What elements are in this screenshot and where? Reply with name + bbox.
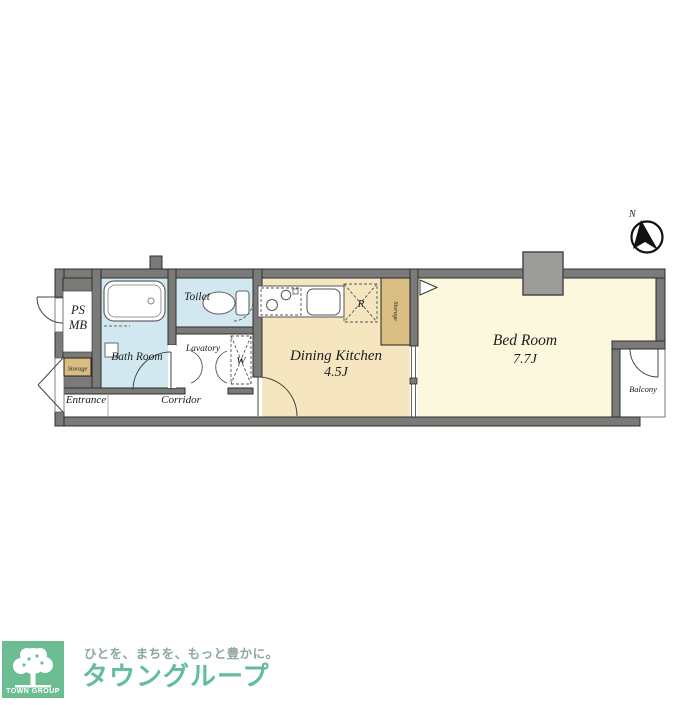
wall-toilet-lavatory (176, 327, 253, 334)
wall-bath-toilet (168, 269, 176, 345)
label-lavatory: Lavatory (185, 344, 221, 354)
wall-bedroom-right (612, 349, 620, 426)
label-dk-name: Dining Kitchen (289, 348, 382, 364)
label-entrance: Entrance (65, 394, 106, 406)
wall-psmb-right (92, 269, 101, 393)
label-toilet: Toilet (184, 291, 211, 303)
label-ps: PS (70, 303, 86, 317)
wall-kitchen-left (253, 269, 262, 377)
label-refrigerator: R (357, 298, 365, 310)
wall-balcony-top (612, 341, 665, 349)
north-arrow-icon: N (628, 209, 663, 253)
wall-stub-top (150, 256, 162, 269)
label-bath: Bath Room (111, 351, 162, 363)
pillar (523, 252, 563, 295)
sink-icon (307, 289, 340, 315)
wall-bottom (55, 417, 640, 426)
label-corridor: Corridor (161, 394, 201, 406)
label-storage-small: Storage (68, 366, 88, 373)
town-group-label: TOWN GROUP (2, 688, 64, 695)
wall-top (55, 269, 665, 278)
label-storage-tall: Storage (392, 301, 399, 321)
sliding-door-dk-bedroom (410, 346, 417, 417)
wall-dk-bedroom (410, 269, 418, 346)
wall-psmb-top (63, 278, 92, 291)
label-bedroom-name: Bed Room (493, 332, 557, 349)
label-mb: MB (68, 318, 87, 332)
floorplan-page: N PS MB Storage Bath Room Toilet Lavator… (0, 0, 700, 700)
compass-n-label: N (628, 209, 637, 220)
footer-brand-name: タウングループ (82, 656, 269, 693)
town-group-logo: TOWN GROUP (2, 641, 64, 698)
opening-bath-door (168, 345, 176, 388)
label-bedroom-size: 7.7J (513, 352, 538, 367)
floorplan-drawing: N PS MB Storage Bath Room Toilet Lavator… (0, 0, 700, 700)
wall-corridor-2 (228, 388, 253, 394)
kitchen-counter (258, 286, 344, 317)
label-balcony: Balcony (629, 384, 657, 394)
wall-left-3 (55, 412, 64, 426)
label-washer: W (236, 355, 246, 367)
opening-entrance-door (55, 358, 64, 412)
wall-right-upper (656, 278, 665, 349)
label-dk-size: 4.5J (324, 365, 349, 380)
